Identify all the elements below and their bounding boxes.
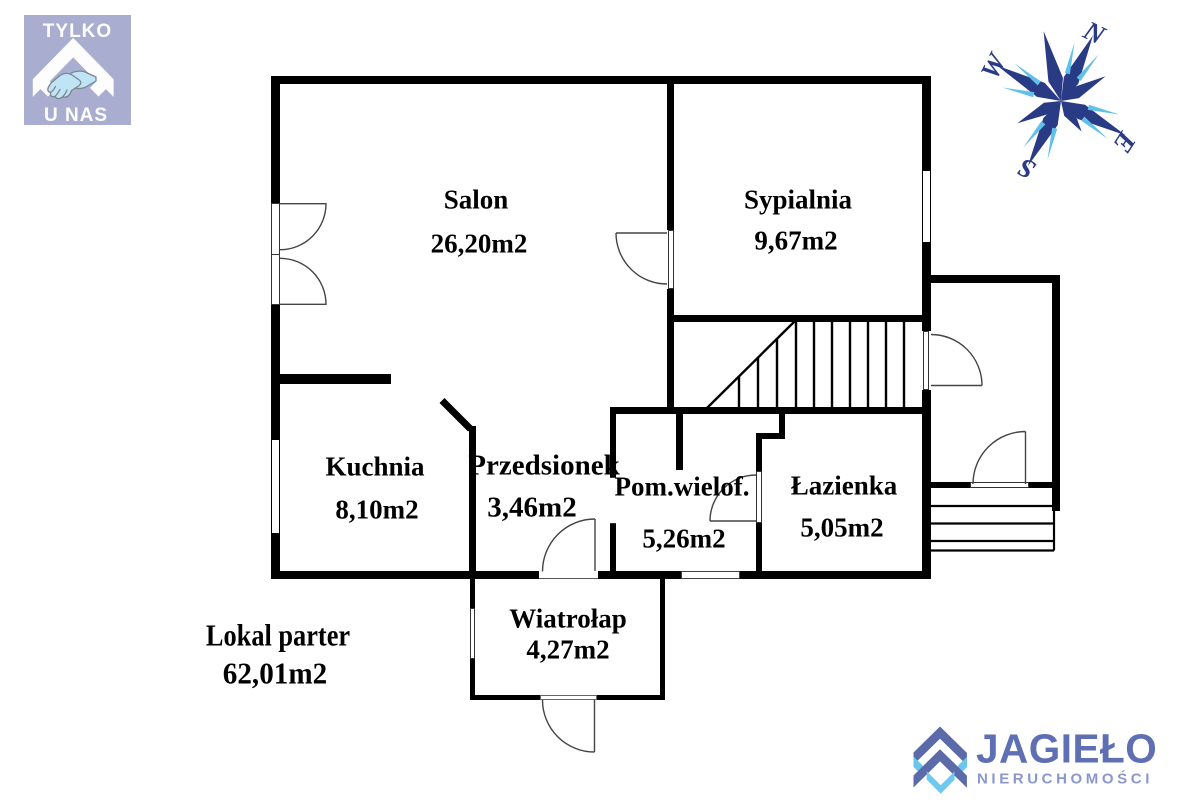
- svg-text:N: N: [1078, 14, 1111, 51]
- svg-text:W: W: [974, 47, 1013, 84]
- svg-text:U NAS: U NAS: [44, 105, 108, 126]
- svg-text:S: S: [1013, 152, 1040, 186]
- svg-text:NIERUCHOMOŚCI: NIERUCHOMOŚCI: [977, 770, 1153, 788]
- svg-text:TYLKO: TYLKO: [43, 21, 112, 42]
- svg-text:JAGIEŁO: JAGIEŁO: [976, 726, 1157, 772]
